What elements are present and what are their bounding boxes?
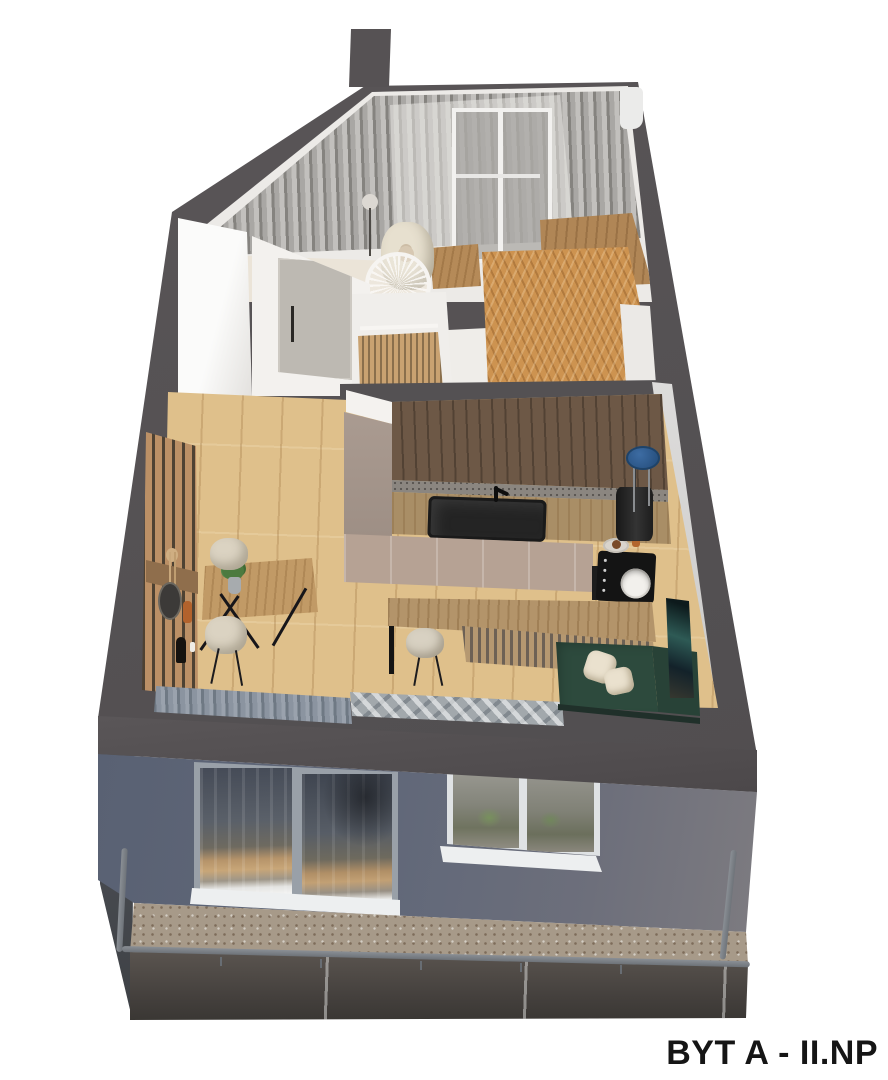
pampas-stems (165, 552, 179, 586)
sliding-door-glass-left (200, 768, 292, 894)
railing-post (620, 965, 622, 974)
cooking-bowl (620, 568, 652, 600)
dining-chair (205, 616, 247, 654)
dining-table (196, 558, 318, 622)
dessert (612, 540, 621, 549)
window-glass-left (453, 768, 519, 848)
bathroom-shelf (360, 324, 438, 331)
cooktop-knob (604, 559, 607, 562)
interior-door (278, 258, 352, 380)
window-bar (456, 174, 540, 178)
bathroom-slats (358, 332, 444, 390)
dining-chair (210, 538, 248, 570)
nursery-window (452, 108, 552, 263)
wardrobe (178, 218, 252, 396)
sliding-door-glass-right (302, 774, 392, 904)
table-mirror (158, 582, 182, 620)
cooktop-knob (603, 579, 606, 582)
cooktop-knob (603, 569, 606, 572)
door-handle (291, 306, 294, 342)
stool-leg (648, 468, 650, 506)
kitchen-sink (427, 496, 546, 542)
bathroom (352, 292, 453, 392)
kitchen-upper-cabinets (390, 394, 668, 490)
railing-post (420, 961, 422, 970)
black-figurine (176, 637, 186, 663)
breakfast-bar-leg (389, 626, 394, 674)
corner-niche (620, 87, 643, 129)
railing-post (520, 963, 522, 972)
orange-vase (183, 601, 192, 623)
window-glass-right (527, 772, 594, 852)
sliding-glass-door (194, 760, 400, 910)
tall-cabinet-side (344, 412, 392, 546)
blue-stool (626, 446, 660, 470)
plant-vase (228, 577, 241, 594)
stool-leg (633, 468, 635, 512)
window-mullion (498, 112, 503, 251)
railing-post (220, 957, 222, 966)
floor-plan-title: BYT A - II.NP (600, 1030, 878, 1076)
floor-lamp-pole (369, 208, 371, 256)
railing-post (320, 959, 322, 968)
cooktop-knob (602, 589, 605, 592)
bar-stool (406, 628, 444, 658)
induction-cooktop (596, 551, 657, 604)
apartment-3d-render: BYT A - II.NP (0, 0, 888, 1080)
candle (190, 642, 195, 652)
chimney-stub (349, 29, 391, 87)
entry-wall-step (620, 304, 656, 384)
kitchen-base-cabinets (344, 534, 593, 592)
